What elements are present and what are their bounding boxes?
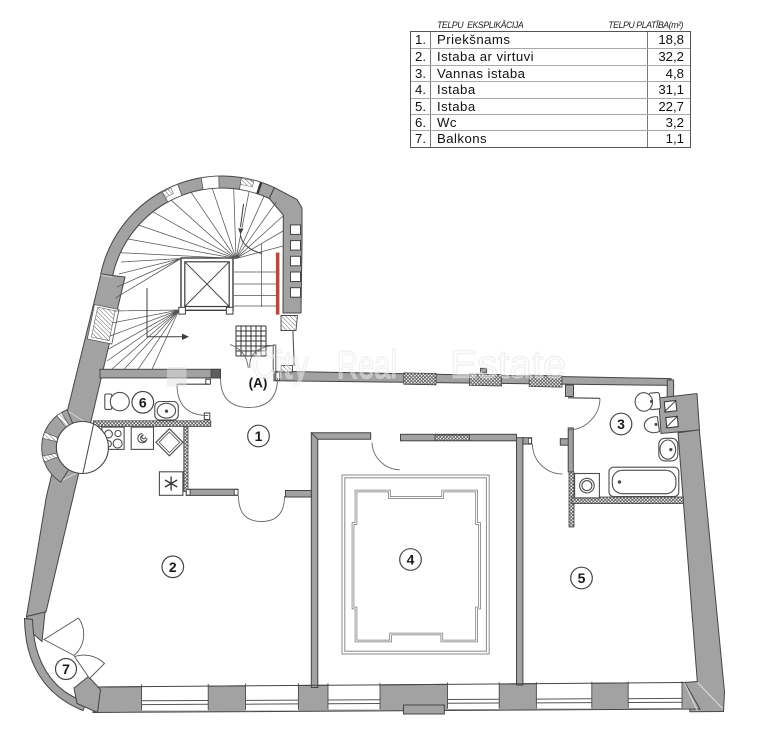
svg-text:5: 5: [578, 570, 586, 586]
svg-text:6: 6: [139, 394, 147, 410]
svg-text:Real: Real: [337, 344, 397, 387]
svg-text:2: 2: [169, 559, 177, 575]
svg-text:3: 3: [617, 416, 625, 432]
svg-text:4: 4: [407, 552, 415, 568]
svg-text:1: 1: [255, 428, 263, 444]
svg-text:Estate: Estate: [450, 344, 566, 387]
svg-text:7: 7: [62, 661, 70, 677]
svg-text:City: City: [252, 344, 310, 387]
